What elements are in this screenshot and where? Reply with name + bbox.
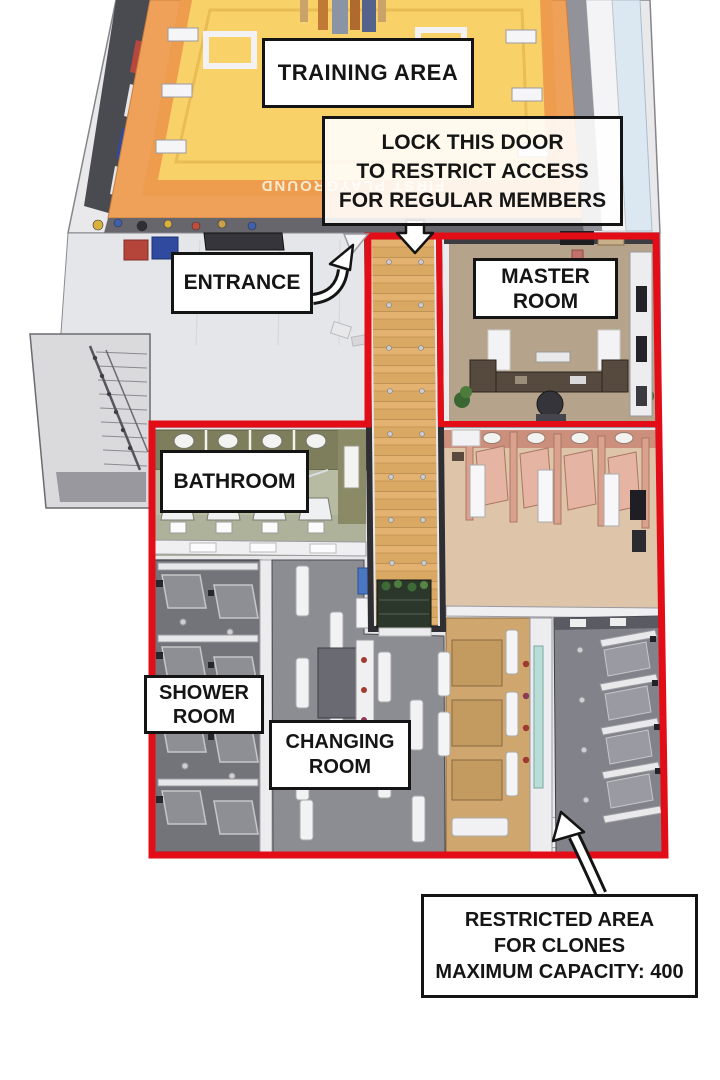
label-entrance: ENTRANCE (171, 252, 313, 314)
label-bathroom-text: BATHROOM (173, 470, 295, 494)
label-training-area: TRAINING AREA (262, 38, 474, 108)
label-shower-room-text: SHOWER ROOM (159, 681, 249, 729)
comic-panel: FIRST PLAYGROUND (0, 0, 720, 1080)
shower-room-right (554, 616, 666, 852)
label-changing-room: CHANGING ROOM (269, 720, 411, 790)
label-changing-room-text: CHANGING ROOM (286, 730, 395, 780)
label-restricted-note-text: RESTRICTED AREA FOR CLONES MAXIMUM CAPAC… (435, 907, 683, 985)
label-lock-door-note-text: LOCK THIS DOOR TO RESTRICT ACCESS FOR RE… (339, 128, 606, 215)
label-bathroom: BATHROOM (160, 450, 309, 513)
label-master-room: MASTER ROOM (473, 258, 618, 319)
label-shower-room: SHOWER ROOM (144, 675, 264, 734)
label-lock-door-note: LOCK THIS DOOR TO RESTRICT ACCESS FOR RE… (322, 116, 623, 226)
label-entrance-text: ENTRANCE (184, 271, 301, 295)
label-restricted-note: RESTRICTED AREA FOR CLONES MAXIMUM CAPAC… (421, 894, 698, 998)
corridor (364, 233, 446, 636)
changing-area-wood (438, 618, 552, 852)
label-master-room-text: MASTER ROOM (501, 264, 590, 314)
right-wash-area (444, 430, 661, 618)
staircase (30, 334, 150, 508)
label-training-area-text: TRAINING AREA (278, 60, 458, 86)
